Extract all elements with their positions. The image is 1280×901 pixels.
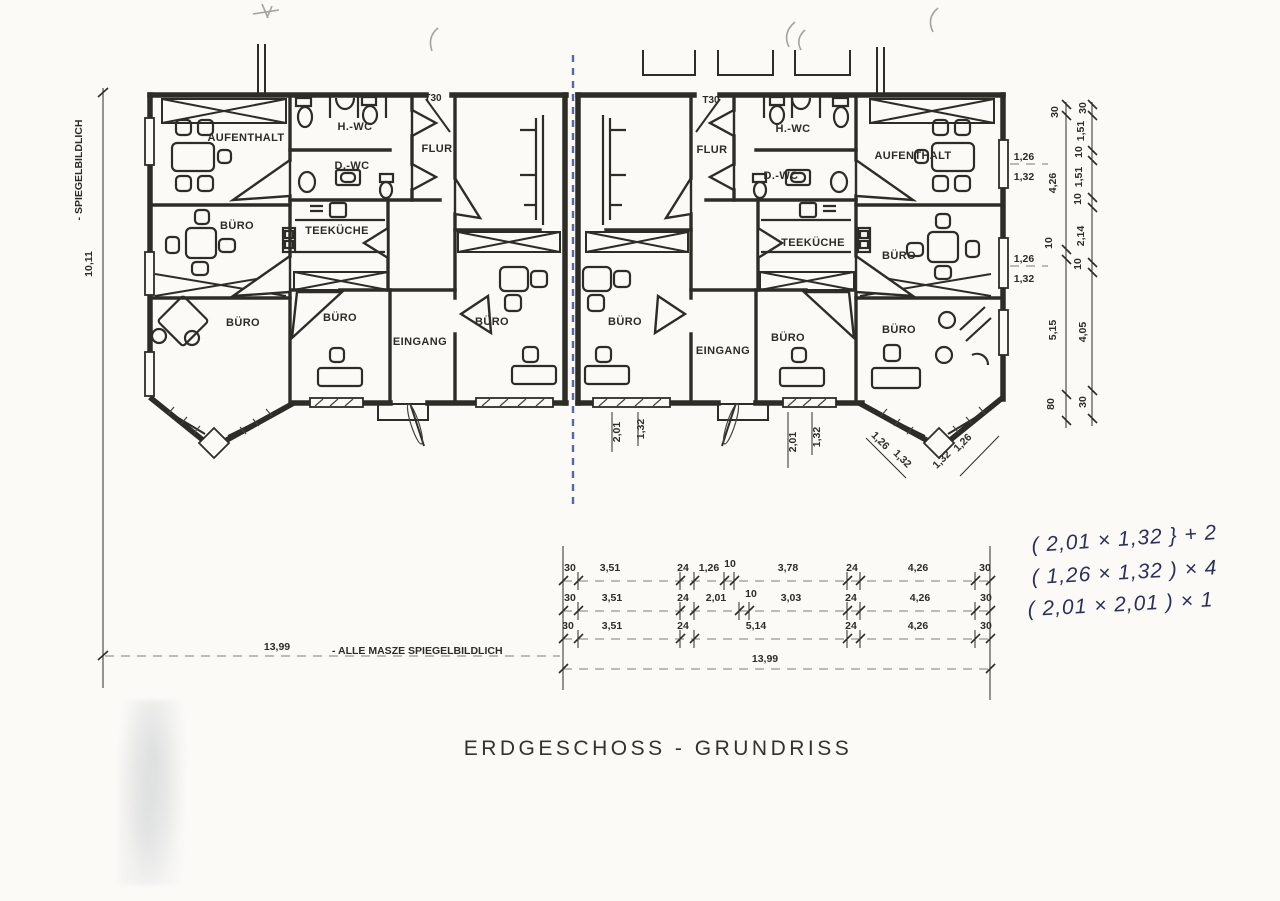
room-label-eingang-left: EINGANG — [393, 336, 447, 348]
dim-r1-6: 24 — [846, 562, 858, 574]
dim-win-b1a: 2,01 — [611, 422, 623, 443]
dim-r3-1: 3,51 — [602, 620, 623, 632]
room-label-buero-sw-left: BÜRO — [226, 316, 260, 329]
dim-rv-o2: 10 — [1073, 146, 1085, 158]
handwritten-line-3: ( 2,01 × 2,01 ) × 1 — [1027, 588, 1214, 621]
dim-r1-5: 3,78 — [778, 562, 799, 574]
dimension-annotations: - SPIEGELBILDLICH 10,11 13,99 - ALLE MAS… — [73, 88, 1097, 700]
dim-win-rl1: 1,32 — [1014, 273, 1035, 285]
dim-rv-o0: 30 — [1077, 102, 1089, 114]
mirror-note: - ALLE MASZE SPIEGELBILDLICH — [332, 645, 503, 657]
dim-rv-o4: 10 — [1072, 193, 1084, 205]
room-label-aufenthalt-right: AUFENTHALT — [874, 150, 951, 162]
dim-rv-o7: 4,05 — [1077, 322, 1089, 343]
room-label-buero-se-right: BÜRO — [882, 323, 916, 336]
dim-win-b1b: 1,32 — [635, 419, 647, 440]
dim-rv-o8: 30 — [1077, 396, 1089, 408]
dim-r3-4: 24 — [845, 620, 857, 632]
dim-win-rl0: 1,26 — [1014, 253, 1035, 265]
dim-r3-3: 5,14 — [746, 620, 767, 632]
dim-r3-0: 30 — [562, 620, 574, 632]
dim-r2-6: 24 — [845, 592, 857, 604]
dim-bay-l1: 1,32 — [891, 447, 914, 470]
door-wedges-right — [655, 110, 913, 338]
dim-rv-i0: 30 — [1049, 106, 1061, 118]
dim-r2-0: 30 — [564, 592, 576, 604]
left-vertical-note: - SPIEGELBILDLICH — [73, 120, 85, 221]
handwritten-line-1: ( 2,01 × 1,32 } + 2 — [1031, 521, 1218, 557]
dim-r1-3: 1,26 — [699, 562, 720, 574]
room-label-buero-mid-right: BÜRO — [882, 249, 916, 262]
left-vertical-value: 10,11 — [83, 251, 95, 277]
dim-bay-l0: 1,26 — [869, 429, 892, 452]
left-total-dim: 13,99 — [264, 641, 290, 653]
left-building: T30 AUFENTHALT H.-WC D.-WC FLUR BÜRO TEE… — [145, 93, 566, 458]
dim-rv-o1: 1,51 — [1075, 121, 1087, 142]
scanned-floorplan-page: T30 AUFENTHALT H.-WC D.-WC FLUR BÜRO TEE… — [0, 0, 1280, 901]
chimney-left — [258, 44, 265, 93]
dim-r3-6: 30 — [980, 620, 992, 632]
room-label-hwc-right: H.-WC — [776, 123, 811, 135]
handwritten-line-2: ( 1,26 × 1,32 ) × 4 — [1031, 556, 1218, 589]
dim-rv-i4: 80 — [1045, 398, 1057, 410]
door-label-t30-left: T30 — [424, 93, 442, 104]
dim-r1-2: 24 — [677, 562, 689, 574]
room-label-buero-mid-left: BÜRO — [220, 219, 254, 232]
dim-rv-i2: 10 — [1043, 237, 1055, 249]
room-label-buero-e-left: BÜRO — [475, 315, 509, 328]
chimney-right — [877, 47, 884, 93]
floorplan-drawing: T30 AUFENTHALT H.-WC D.-WC FLUR BÜRO TEE… — [0, 0, 1280, 901]
right-building: T30 AUFENTHALT H.-WC D.-WC FLUR BÜRO TEE… — [578, 95, 1008, 458]
room-label-hwc-left: H.-WC — [338, 121, 373, 133]
dim-r2-5: 3,03 — [781, 592, 802, 604]
room-label-flur-left: FLUR — [422, 143, 453, 155]
room-label-flur-right: FLUR — [697, 144, 728, 156]
dim-win-ru0: 1,26 — [1014, 151, 1035, 163]
room-label-aufenthalt-left: AUFENTHALT — [207, 132, 284, 144]
dim-win-b2a: 2,01 — [787, 432, 799, 453]
dim-rv-o6: 10 — [1072, 258, 1084, 270]
drawing-title: ERDGESCHOSS - GRUNDRISS — [464, 737, 853, 760]
room-label-dwc-left: D.-WC — [335, 160, 370, 172]
dim-r2-3: 2,01 — [706, 592, 727, 604]
room-label-eingang-right: EINGANG — [696, 345, 750, 357]
dim-r1-7: 4,26 — [908, 562, 929, 574]
dim-rv-o5: 2,14 — [1075, 226, 1087, 247]
dim-r2-7: 4,26 — [910, 592, 931, 604]
dim-rv-i3: 5,15 — [1047, 320, 1059, 341]
dim-r2-1: 3,51 — [602, 592, 623, 604]
dim-r1-1: 3,51 — [600, 562, 621, 574]
dim-win-b2b: 1,32 — [811, 427, 823, 448]
dim-rv-o3: 1,51 — [1073, 167, 1085, 188]
room-label-buero-w-right: BÜRO — [608, 315, 642, 328]
dim-win-ru1: 1,32 — [1014, 171, 1035, 183]
dim-r3-2: 24 — [677, 620, 689, 632]
roof-outline-boxes — [643, 50, 850, 75]
dim-r1-4: 10 — [724, 558, 736, 570]
room-label-buero-s-left: BÜRO — [323, 311, 357, 324]
door-label-t30-right: T30 — [702, 95, 720, 106]
room-label-dwc-right: D.-WC — [764, 170, 799, 182]
dim-r2-8: 30 — [980, 592, 992, 604]
dim-r1-0: 30 — [564, 562, 576, 574]
dim-r1-8: 30 — [979, 562, 991, 574]
right-total-dim: 13,99 — [752, 653, 778, 665]
dim-r2-2: 24 — [677, 592, 689, 604]
dim-r2-4: 10 — [745, 588, 757, 600]
room-label-buero-s-right: BÜRO — [771, 331, 805, 344]
scan-artifacts — [253, 4, 938, 93]
handwritten-notes: ( 2,01 × 1,32 } + 2 ( 1,26 × 1,32 ) × 4 … — [1027, 521, 1218, 621]
dim-rv-i1: 4,26 — [1047, 173, 1059, 194]
dim-r3-5: 4,26 — [908, 620, 929, 632]
room-label-teekueche-left: TEEKÜCHE — [305, 224, 369, 237]
room-label-teekueche-right: TEEKÜCHE — [781, 236, 845, 249]
